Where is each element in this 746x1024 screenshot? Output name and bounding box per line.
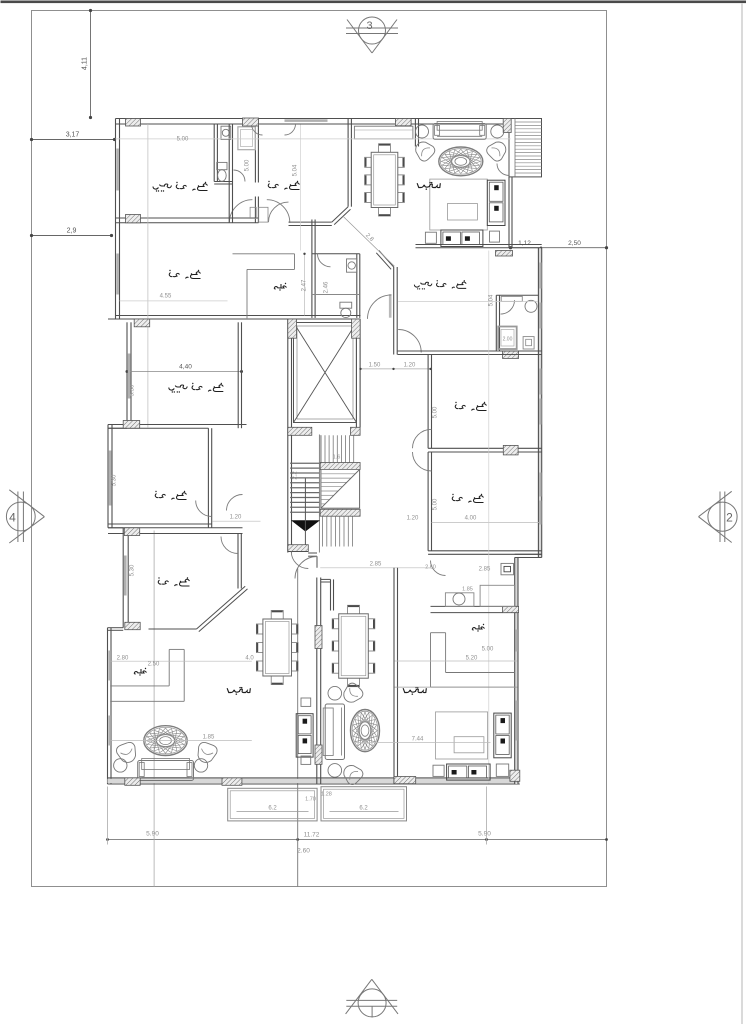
svg-text:4.00: 4.00 xyxy=(465,516,477,522)
svg-text:1.28: 1.28 xyxy=(321,792,332,798)
svg-text:1.70: 1.70 xyxy=(305,797,316,803)
svg-text:1.20: 1.20 xyxy=(230,515,242,521)
svg-text:4,40: 4,40 xyxy=(179,364,192,371)
svg-text:5.00: 5.00 xyxy=(433,498,439,510)
svg-text:5.00: 5.00 xyxy=(433,406,439,418)
svg-text:5.00: 5.00 xyxy=(482,647,494,653)
svg-text:4: 4 xyxy=(9,511,16,525)
svg-text:5.00: 5.00 xyxy=(177,137,189,143)
svg-text:5.04: 5.04 xyxy=(293,164,299,176)
svg-text:2.00: 2.00 xyxy=(503,337,513,343)
svg-text:5.00: 5.00 xyxy=(245,159,251,171)
svg-text:1.20: 1.20 xyxy=(407,516,419,522)
svg-text:4.0: 4.0 xyxy=(245,656,254,662)
svg-text:2.50: 2.50 xyxy=(148,662,160,668)
svg-text:1.6: 1.6 xyxy=(333,455,341,461)
svg-text:2.46: 2.46 xyxy=(324,281,330,293)
svg-text:2.80: 2.80 xyxy=(117,656,129,662)
svg-text:2.85: 2.85 xyxy=(479,567,491,573)
svg-text:2,9: 2,9 xyxy=(67,228,77,235)
svg-text:5.30: 5.30 xyxy=(130,564,136,576)
svg-text:3: 3 xyxy=(366,20,372,32)
svg-text:6.2: 6.2 xyxy=(359,806,368,812)
svg-text:4,11: 4,11 xyxy=(82,57,89,70)
svg-text:4.55: 4.55 xyxy=(160,294,172,300)
svg-text:7.44: 7.44 xyxy=(412,737,424,743)
svg-text:6.2: 6.2 xyxy=(268,806,277,812)
svg-text:3,17: 3,17 xyxy=(66,132,80,139)
svg-text:5.90: 5.90 xyxy=(146,831,159,838)
svg-text:2.85: 2.85 xyxy=(370,562,382,568)
svg-text:2.47: 2.47 xyxy=(302,279,308,291)
svg-text:2.60: 2.60 xyxy=(297,848,310,855)
svg-text:5.30: 5.30 xyxy=(112,474,118,486)
svg-text:1.20: 1.20 xyxy=(404,363,416,369)
svg-text:2.2: 2.2 xyxy=(293,471,299,480)
svg-text:1.85: 1.85 xyxy=(462,587,473,593)
svg-text:1.85: 1.85 xyxy=(203,735,215,741)
svg-text:5.20: 5.20 xyxy=(466,656,478,662)
svg-text:1.50: 1.50 xyxy=(369,363,381,369)
svg-text:2: 2 xyxy=(726,511,733,525)
svg-text:11.72: 11.72 xyxy=(304,832,320,839)
svg-text:1,12: 1,12 xyxy=(518,240,531,247)
svg-text:5.90: 5.90 xyxy=(478,831,491,838)
svg-text:5.04: 5.04 xyxy=(489,294,495,306)
svg-text:2,50: 2,50 xyxy=(568,240,581,247)
